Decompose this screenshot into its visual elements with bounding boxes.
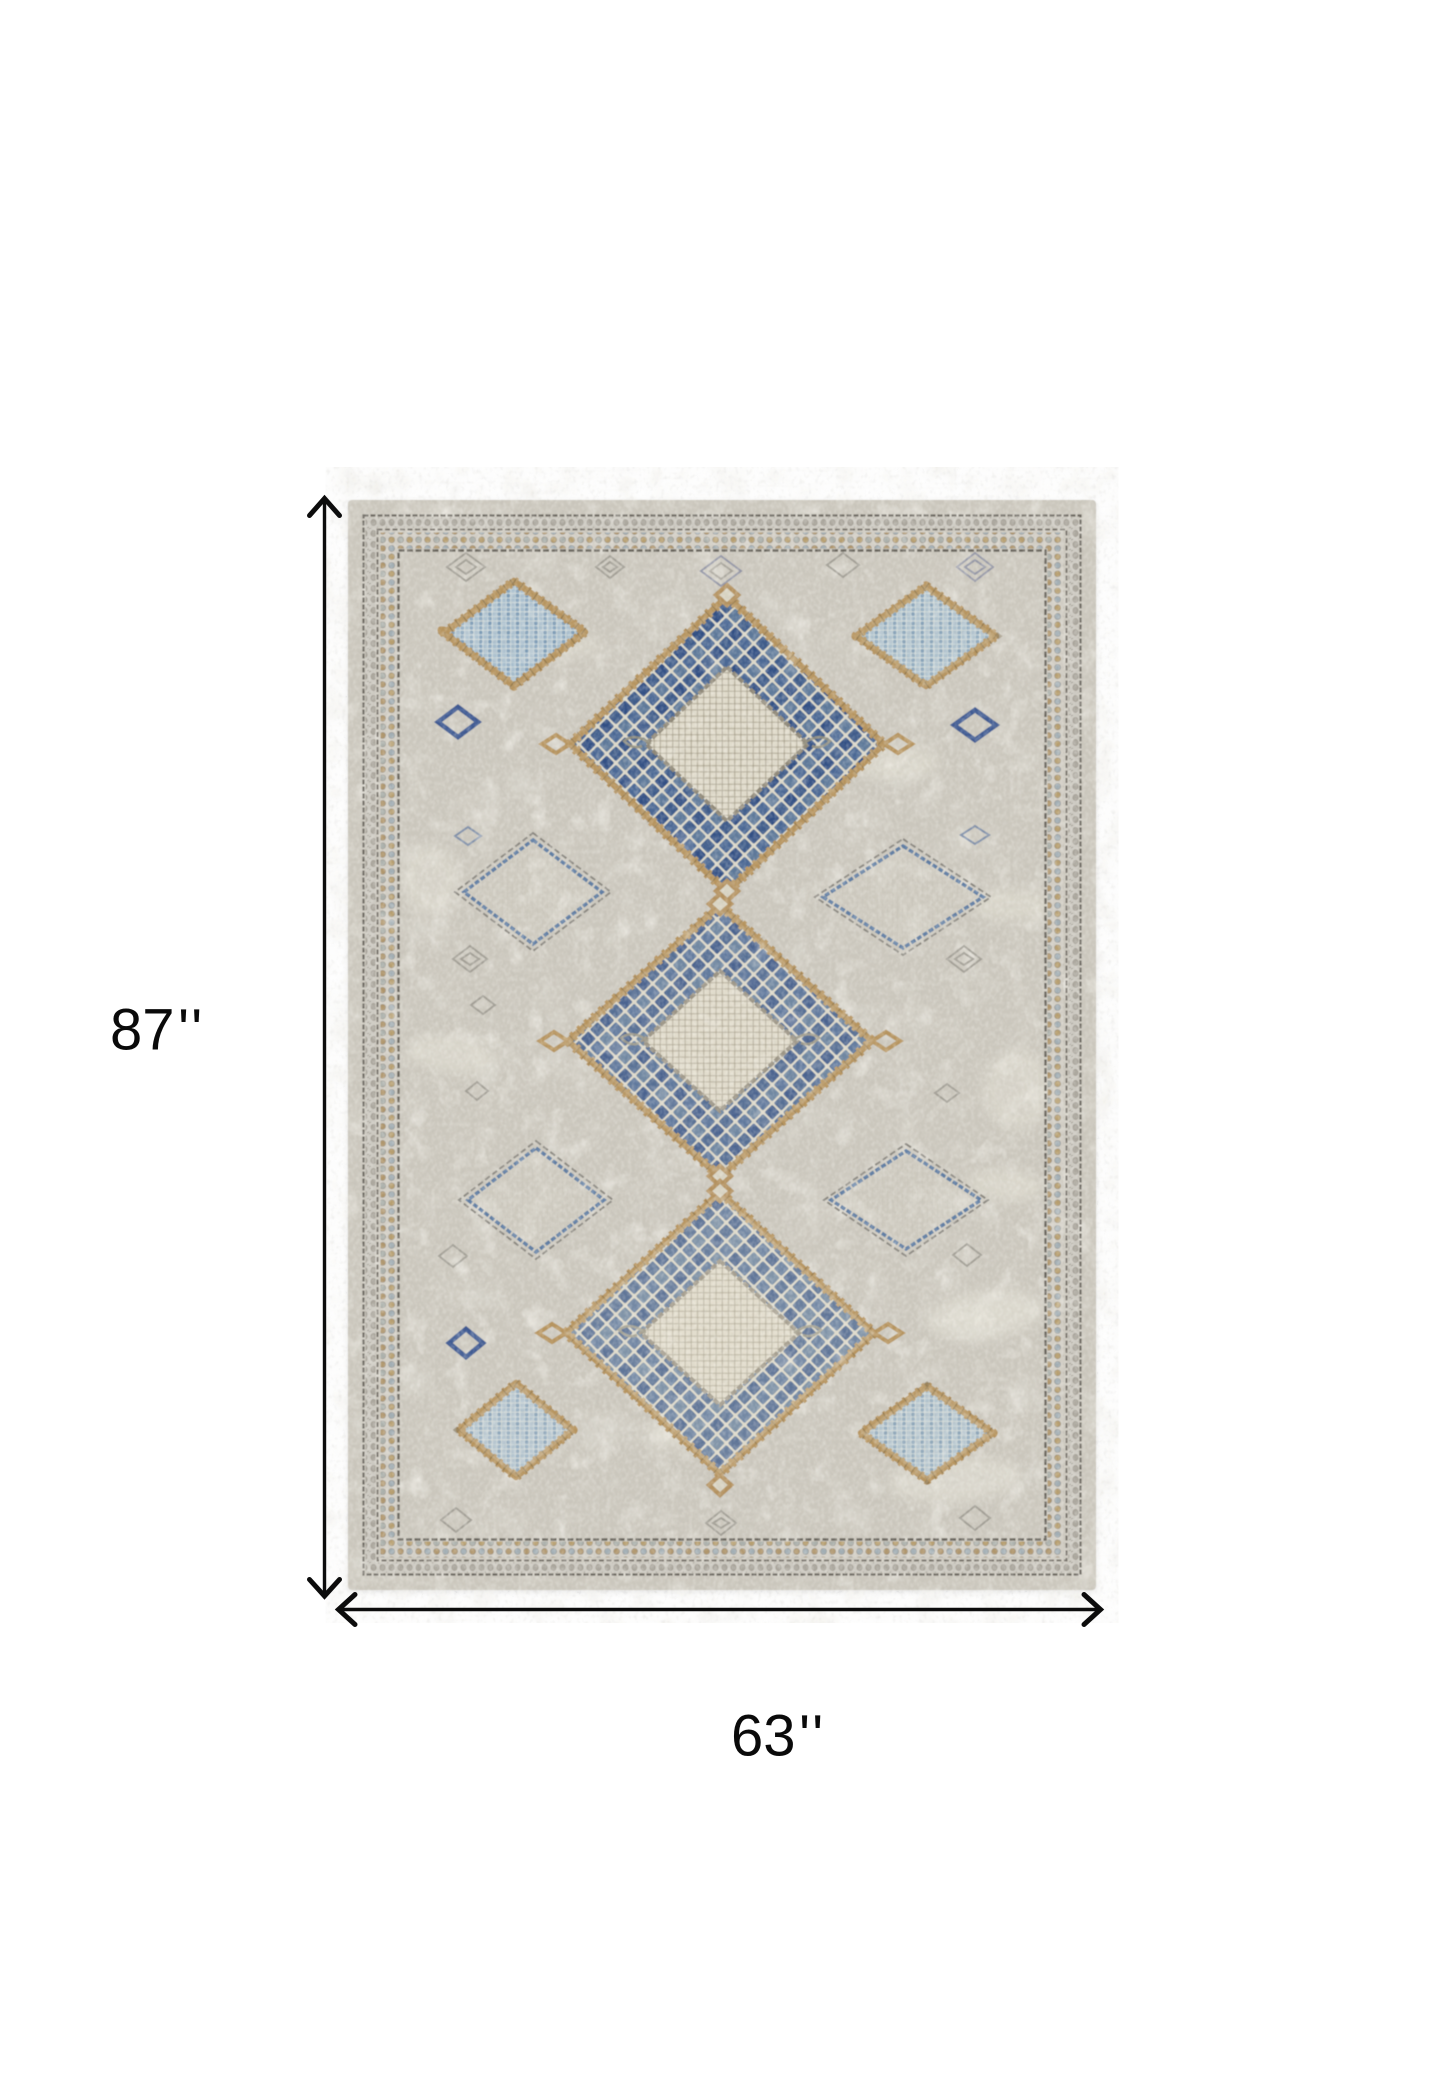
svg-text:63'': 63'' xyxy=(731,1704,823,1769)
svg-text:87'': 87'' xyxy=(110,998,202,1063)
